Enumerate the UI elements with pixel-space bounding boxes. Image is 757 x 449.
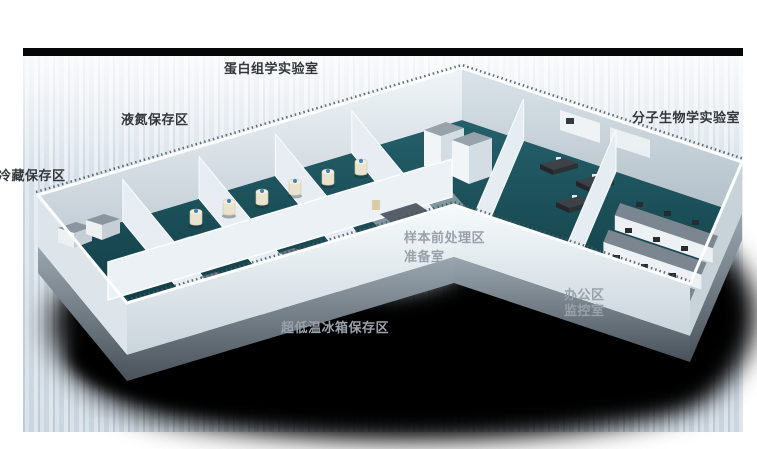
label-proteomics-lab: 蛋白组学实验室 [224,62,319,75]
label-ult-freezer-storage: 超低温冰箱保存区 [281,321,389,334]
lab-floorplan-scene: 蛋白组学实验室 液氮保存区 冷藏保存区 分子生物学实验室 样本前处理区 准备室 … [0,0,757,449]
label-liquid-nitrogen-storage: 液氮保存区 [121,113,189,126]
label-monitor-room: 监控室 [564,304,605,317]
label-office-area: 办公区 [564,288,605,301]
label-cold-storage: 冷藏保存区 [0,169,66,182]
label-molecular-biology-lab: 分子生物学实验室 [632,111,740,124]
label-prep-room: 准备室 [404,250,445,263]
facility-3d-render [0,0,757,449]
label-sample-pretreatment: 样本前处理区 [404,231,485,244]
